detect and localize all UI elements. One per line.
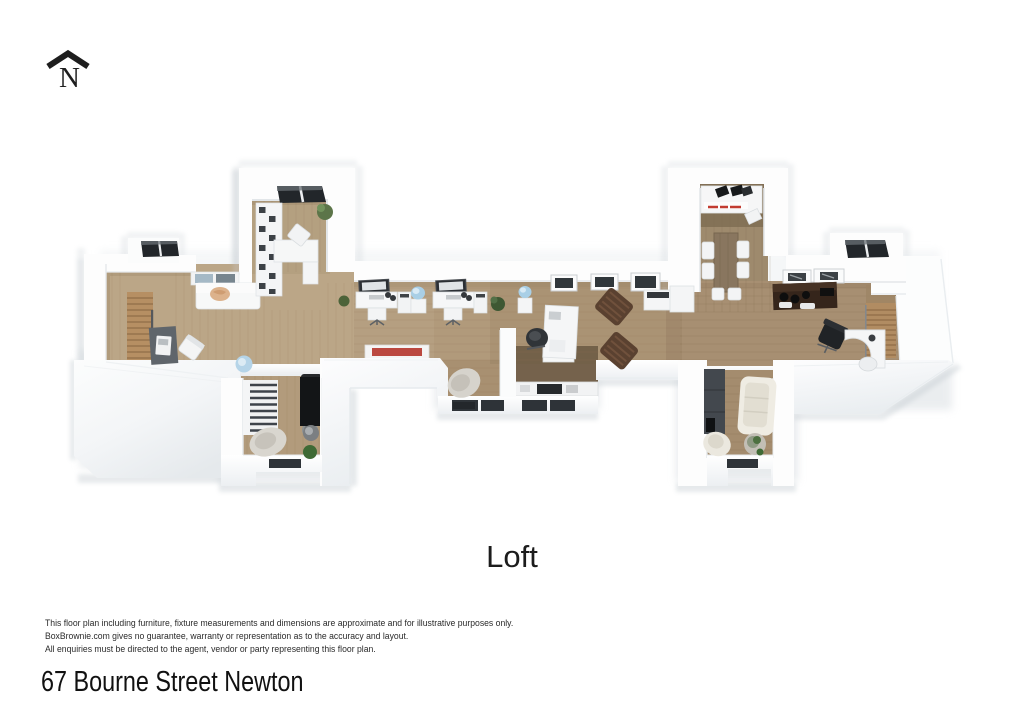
svg-text:N: N — [59, 62, 80, 94]
